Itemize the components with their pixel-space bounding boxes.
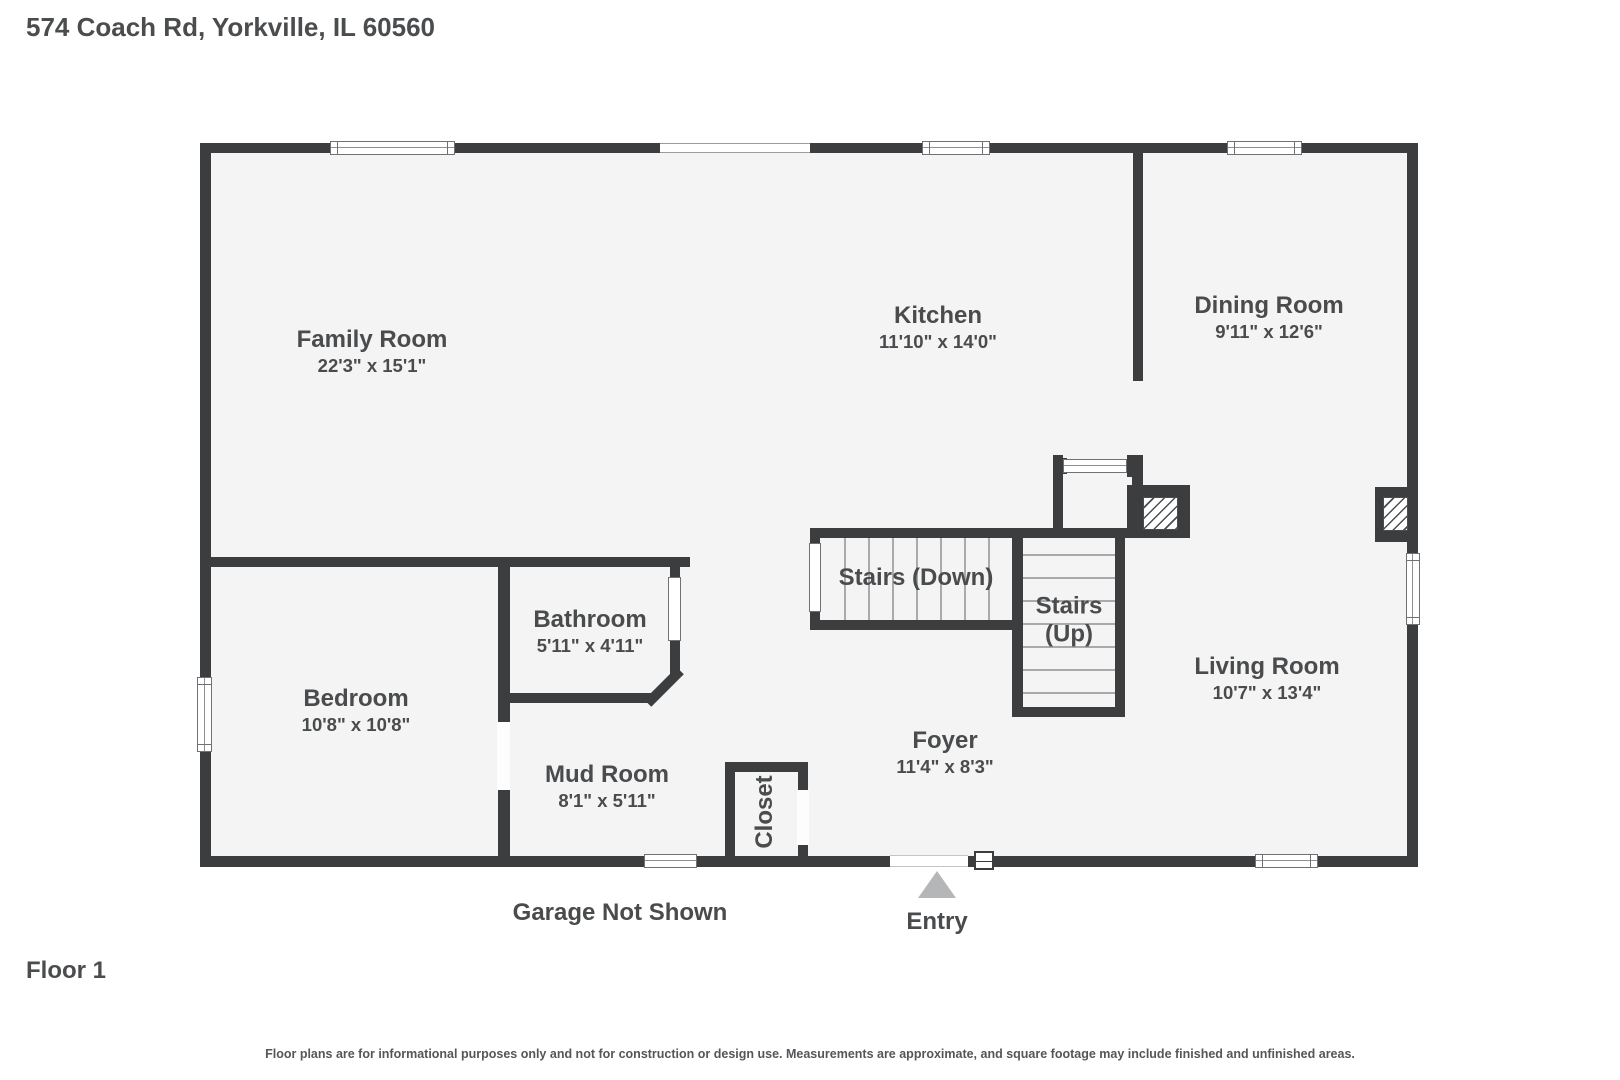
disclaimer-text: Floor plans are for informational purpos…	[265, 1047, 1355, 1061]
room-label-mudroom: Mud Room 8'1" x 5'11"	[545, 761, 669, 813]
stair-tread-line	[1023, 692, 1115, 694]
wall-closet-left	[725, 762, 735, 856]
wall-stairsdown-left-stub-top	[810, 528, 820, 543]
door-bedroom-gap	[497, 722, 510, 790]
entry-arrow-icon	[918, 871, 956, 898]
entry-door-icon	[974, 851, 994, 870]
garage-note: Garage Not Shown	[513, 899, 728, 927]
floorplan-page: 574 Coach Rd, Yorkville, IL 60560	[0, 0, 1620, 1080]
wall-kitchen-dining	[1133, 148, 1143, 381]
window-top-family	[330, 141, 455, 155]
window-top-kitchen	[922, 141, 990, 155]
wall-stairsup-bottom	[1012, 707, 1125, 717]
room-label-kitchen: Kitchen 11'10" x 14'0"	[879, 302, 997, 354]
room-label-foyer: Foyer 11'4" x 8'3"	[896, 727, 993, 779]
wall-closet-top	[725, 762, 808, 772]
room-label-bedroom: Bedroom 10'8" x 10'8"	[302, 685, 411, 737]
fireplace-center-hatch-icon	[1143, 497, 1178, 530]
wall-bedroom-divider-lower	[498, 790, 510, 856]
room-label-stairs-up: Stairs (Up)	[1013, 592, 1125, 647]
window-stairhall-closet	[1063, 459, 1127, 473]
room-label-family: Family Room 22'3" x 15'1"	[297, 326, 448, 378]
floor-number-label: Floor 1	[26, 957, 106, 985]
window-top-dining	[1227, 141, 1302, 155]
stair-tread-line	[1023, 669, 1115, 671]
window-bottom-living	[1255, 854, 1318, 868]
fireplace-right-hatch-icon	[1383, 497, 1408, 531]
window-left-bedroom	[197, 677, 212, 752]
wall-bathroom-bottom	[505, 693, 653, 703]
window-right-living	[1406, 553, 1420, 625]
wall-bedroom-top	[200, 557, 690, 567]
room-label-living: Living Room 10'7" x 13'4"	[1194, 653, 1339, 705]
floor-plan-canvas: Family Room 22'3" x 15'1" Kitchen 11'10"…	[0, 0, 1620, 1080]
floor-area	[200, 143, 1418, 867]
window-bottom-mudroom	[644, 854, 697, 868]
room-label-bathroom: Bathroom 5'11" x 4'11"	[533, 606, 646, 658]
wall-exterior-left	[200, 143, 211, 867]
wall-stairsdown-bottom	[810, 620, 1023, 630]
window-bathroom	[668, 577, 681, 641]
room-label-dining: Dining Room 9'11" x 12'6"	[1194, 292, 1343, 344]
door-entry-gap	[890, 855, 968, 867]
entry-label: Entry	[906, 908, 967, 936]
stair-tread-line	[1023, 554, 1115, 556]
opening-top-center	[660, 143, 810, 153]
wall-stairsdown-left-stub-bottom	[810, 612, 820, 630]
stair-tread-line	[1023, 577, 1115, 579]
room-label-stairs-down: Stairs (Down)	[839, 564, 994, 592]
door-closet-gap	[797, 790, 809, 845]
wall-exterior-bottom	[200, 856, 1418, 867]
room-label-closet: Closet	[751, 775, 779, 848]
